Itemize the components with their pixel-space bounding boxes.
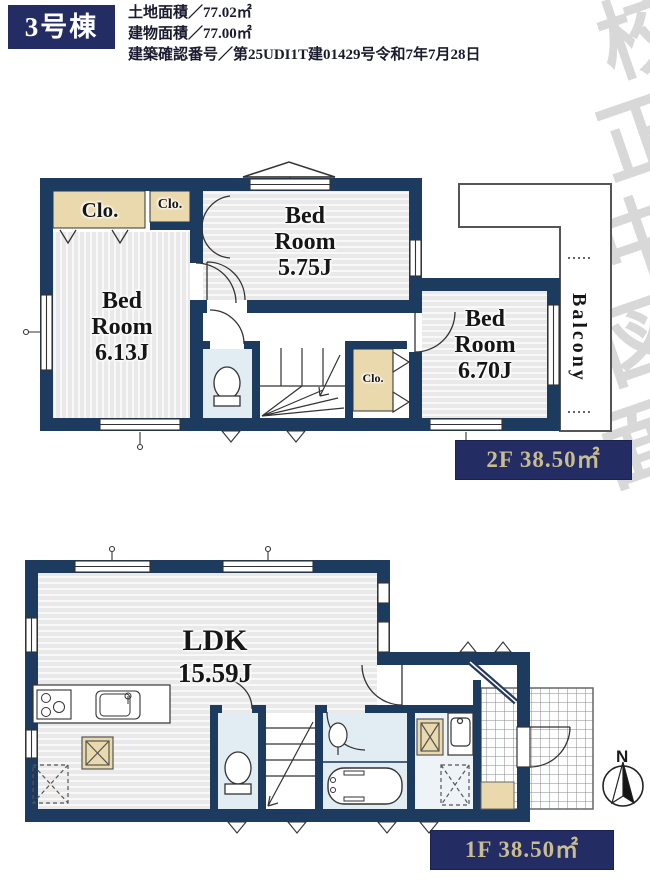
north-label: N	[616, 747, 628, 767]
toilet-icon-2f	[214, 367, 240, 406]
watermark-char: 校	[587, 0, 650, 91]
hall-floor	[390, 665, 481, 705]
floor2-area-badge: 2F 38.50㎡	[455, 440, 632, 480]
bedroom-613-label: Bed Room 6.13J	[62, 288, 182, 366]
kitchen-counter	[33, 685, 170, 723]
bathtub-icon	[328, 768, 402, 804]
closet-hall-label: Clo.	[352, 371, 394, 386]
land-area-text: 土地面積／77.02㎡	[128, 3, 252, 24]
closet-large-label: Clo.	[55, 198, 145, 223]
confirmation-number-text: 建築確認番号／第25UDI1T建01429号令和7年7月28日	[128, 45, 481, 66]
floorplan-sheet: 校 正 中 図 面 3号棟 土地面積／77.02㎡ 建物面積／77.00㎡ 建築…	[0, 0, 650, 882]
balcony-label: Balcony	[567, 293, 590, 383]
roof-symbol	[243, 162, 335, 177]
floor1-area-badge: 1F 38.50㎡	[430, 830, 614, 870]
stairs-2f	[260, 348, 345, 416]
bedroom-575-label: Bed Room 5.75J	[245, 203, 365, 281]
compass	[603, 762, 643, 806]
door-toilet-2f	[210, 310, 244, 344]
closet-small-label: Clo.	[150, 197, 190, 213]
folding-door-marks	[393, 352, 409, 412]
ldk-label: LDK 15.59J	[150, 625, 280, 689]
entrance-step	[481, 782, 514, 809]
building-number-badge: 3号棟	[8, 5, 115, 49]
building-area-text: 建物面積／77.00㎡	[128, 24, 252, 45]
washbasin-bath	[329, 723, 347, 747]
toilet-icon-1f	[225, 752, 251, 794]
bedroom-670-label: Bed Room 6.70J	[425, 306, 545, 384]
floor1-plan	[0, 545, 650, 860]
sink-icon	[96, 691, 140, 719]
